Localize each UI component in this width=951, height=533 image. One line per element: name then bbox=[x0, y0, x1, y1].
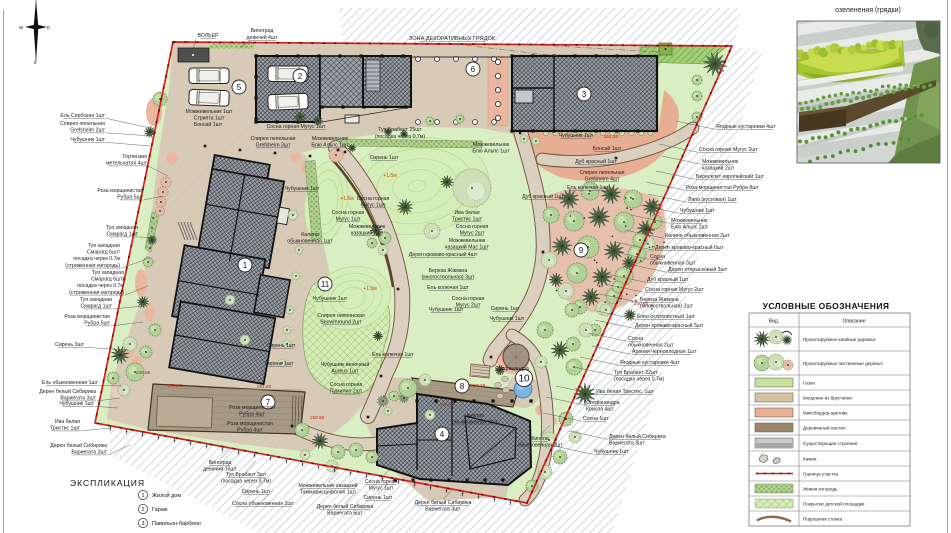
svg-text:Проектируемые лиственные дерев: Проектируемые лиственные деревья bbox=[803, 361, 883, 366]
svg-text:Ива белая: Ива белая bbox=[454, 210, 479, 216]
svg-text:+1.0м: +1.0м bbox=[363, 286, 377, 292]
svg-text:Павильон-барбекю: Павильон-барбекю bbox=[152, 521, 201, 527]
svg-text:Деревянный настил: Деревянный настил bbox=[803, 424, 846, 430]
svg-text:Роза морщинистая: Роза морщинистая bbox=[64, 314, 110, 320]
svg-text:Туя западная: Туя западная bbox=[92, 270, 124, 276]
svg-text:Виноград: Виноград bbox=[251, 28, 274, 34]
svg-text:(посадка через 0.7м): (посадка через 0.7м) bbox=[614, 377, 664, 383]
svg-text:4: 4 bbox=[440, 430, 445, 439]
svg-text:Миксбордер-цветник: Миксбордер-цветник bbox=[803, 410, 848, 415]
svg-text:1: 1 bbox=[243, 261, 248, 270]
svg-text:150.60: 150.60 bbox=[440, 402, 455, 408]
svg-text:Дерен кроваво-красный 6шт: Дерен кроваво-красный 6шт bbox=[655, 244, 724, 251]
svg-text:6: 6 bbox=[471, 65, 476, 74]
svg-text:Стрипта 1шт: Стрипта 1шт bbox=[194, 116, 225, 122]
svg-text:5: 5 bbox=[237, 83, 242, 92]
svg-text:Ива белая: Ива белая bbox=[55, 419, 80, 425]
svg-text:Дерен белый Сибирика: Дерен белый Сибирика bbox=[317, 503, 374, 510]
svg-text:Можжевельник: Можжевельник bbox=[473, 142, 510, 148]
svg-text:Гортензия: Гортензия bbox=[123, 154, 147, 160]
svg-text:Можжевельник: Можжевельник bbox=[349, 224, 386, 230]
svg-text:Смарагд 6шт/: Смарагд 6шт/ bbox=[87, 250, 121, 256]
svg-text:Живая изгородь: Живая изгородь bbox=[803, 486, 838, 491]
svg-text:Гараж: Гараж bbox=[152, 507, 168, 513]
svg-text:Можжевельник: Можжевельник bbox=[312, 136, 349, 142]
svg-text:150.60: 150.60 bbox=[310, 415, 325, 421]
svg-text:Туя западная: Туя западная bbox=[88, 243, 120, 249]
svg-text:Существующие строения: Существующие строения bbox=[803, 441, 858, 446]
svg-text:Мощение из брусчатки: Мощение из брусчатки bbox=[803, 395, 852, 400]
svg-text:Анелла: Анелла bbox=[466, 413, 484, 419]
svg-text:казацкий 2шт: казацкий 2шт bbox=[702, 165, 735, 172]
svg-text:Блю Альпс 2шт: Блю Альпс 2шт bbox=[671, 225, 709, 231]
svg-text:Дуб красный 1шт: Дуб красный 1шт bbox=[575, 158, 617, 165]
svg-text:Дерен отпрысковый 3шт: Дерен отпрысковый 3шт bbox=[668, 266, 728, 273]
svg-text:посадка через 0.7м: посадка через 0.7м bbox=[77, 283, 124, 289]
svg-text:Вариегата 3шт: Вариегата 3шт bbox=[425, 507, 461, 513]
svg-text:Спирея пепельная: Спирея пепельная bbox=[60, 121, 105, 127]
svg-text:Подпорная стенка: Подпорная стенка bbox=[803, 516, 842, 521]
svg-text:обыкновенная 3шт: обыкновенная 3шт bbox=[650, 261, 696, 267]
svg-text:Туя Брабант 25шт: Туя Брабант 25шт bbox=[378, 127, 422, 133]
svg-text:Туя западная: Туя западная bbox=[80, 297, 112, 303]
svg-text:Дерен белый Сибирика: Дерен белый Сибирика bbox=[39, 388, 96, 395]
svg-text:Туя западная: Туя западная bbox=[106, 225, 138, 231]
svg-text:Жилой дом: Жилой дом bbox=[152, 492, 181, 499]
svg-text:Бересклет европейский 1шт: Бересклет европейский 1шт bbox=[696, 173, 765, 180]
svg-text:Роза морщинистая: Роза морщинистая bbox=[97, 188, 143, 194]
svg-text:Чубушник веночный: Чубушник веночный bbox=[321, 361, 370, 368]
svg-text:2: 2 bbox=[141, 507, 144, 513]
svg-text:Газон: Газон bbox=[803, 380, 815, 385]
svg-text:Калина: Калина bbox=[301, 232, 319, 238]
svg-text:E: E bbox=[47, 25, 50, 30]
svg-text:(посадка через 0.7м): (посадка через 0.7м) bbox=[375, 134, 425, 140]
svg-text:Покрытие детской площадки: Покрытие детской площадки bbox=[803, 500, 865, 506]
svg-text:озеленения (грядки): озеленения (грядки) bbox=[835, 7, 901, 14]
svg-text:Вид.: Вид. bbox=[769, 319, 779, 325]
svg-text:2: 2 bbox=[298, 72, 303, 81]
svg-text:151,80: 151,80 bbox=[257, 384, 272, 390]
svg-text:Бонсай 1шт: Бонсай 1шт bbox=[593, 145, 622, 152]
svg-text:Криспа 4шт: Криспа 4шт bbox=[586, 407, 615, 413]
svg-text:УСЛОВНЫЕ ОБОЗНАЧЕНИЯ: УСЛОВНЫЕ ОБОЗНАЧЕНИЯ bbox=[763, 301, 890, 311]
svg-text:W: W bbox=[19, 25, 24, 30]
svg-text:Бонсай 1шт: Бонсай 1шт bbox=[194, 121, 223, 128]
svg-text:11: 11 bbox=[321, 280, 330, 289]
svg-text:Роза морщинистая: Роза морщинистая bbox=[229, 405, 275, 411]
svg-text:(посадка через 0.7м): (посадка через 0.7м) bbox=[221, 479, 271, 485]
svg-text:151,20: 151,20 bbox=[604, 134, 619, 140]
svg-text:Блю Альпс 1шт: Блю Альпс 1шт bbox=[472, 149, 510, 155]
svg-text:казацкий 2шт: казацкий 2шт bbox=[351, 230, 384, 237]
svg-text:Дерен белый Сибирика: Дерен белый Сибирика bbox=[50, 442, 107, 449]
svg-text:1: 1 bbox=[141, 493, 144, 499]
svg-text:150.79: 150.79 bbox=[471, 383, 486, 389]
svg-text:Сосна горная: Сосна горная bbox=[452, 296, 485, 302]
svg-text:посадка через 0.7м: посадка через 0.7м bbox=[73, 256, 120, 262]
svg-text:Проектируемые хвойные деревья: Проектируемые хвойные деревья bbox=[803, 336, 876, 342]
svg-text:Стефанандра: Стефанандра bbox=[495, 366, 529, 372]
svg-text:Вариегата 3шт: Вариегата 3шт bbox=[609, 441, 645, 447]
svg-text:Спирея ниппонская: Спирея ниппонская bbox=[317, 313, 364, 319]
svg-text:8: 8 bbox=[460, 382, 465, 391]
svg-text:девичий 4шт: девичий 4шт bbox=[247, 34, 279, 41]
svg-text:3: 3 bbox=[582, 90, 587, 99]
svg-text:Дерен кроваво-красный 4шт: Дерен кроваво-красный 4шт bbox=[409, 251, 478, 258]
svg-text:9: 9 bbox=[579, 246, 584, 255]
svg-text:Камни: Камни bbox=[803, 456, 817, 461]
svg-text:обыкновенная 2шт: обыкновенная 2шт bbox=[628, 343, 674, 349]
svg-text:150.98: 150.98 bbox=[136, 370, 151, 376]
svg-text:Дерен кроваво-красный 5шт: Дерен кроваво-красный 5шт bbox=[635, 322, 704, 329]
svg-text:Сосна горная: Сосна горная bbox=[332, 210, 365, 216]
svg-text:Спирея пепельная: Спирея пепельная bbox=[251, 136, 296, 142]
svg-text:Граница участка: Граница участка bbox=[803, 471, 839, 476]
svg-text:Таммарисцифолия 1шт: Таммарисцифолия 1шт bbox=[300, 490, 357, 496]
svg-text:Роза морщинистая: Роза морщинистая bbox=[227, 421, 273, 427]
svg-text:(многоствольная) 2шт: (многоствольная) 2шт bbox=[640, 304, 694, 310]
svg-text:Дуб красный 1шт: Дуб красный 1шт bbox=[522, 193, 564, 200]
svg-text:Можжевельник казацкий: Можжевельник казацкий bbox=[298, 482, 357, 489]
svg-text:10: 10 bbox=[518, 374, 530, 385]
svg-text:Дерен белый Сибирика: Дерен белый Сибирика bbox=[609, 433, 666, 440]
svg-text:Сосна горная: Сосна горная bbox=[330, 382, 363, 388]
svg-text:151,80: 151,80 bbox=[168, 383, 183, 389]
svg-text:+1.5м: +1.5м bbox=[340, 196, 354, 202]
svg-text:Смарагд 6шт/: Смарагд 6шт/ bbox=[91, 277, 125, 283]
svg-text:Можжевельник 1шт: Можжевельник 1шт bbox=[185, 109, 233, 115]
svg-text:Сосна горная: Сосна горная bbox=[456, 224, 489, 230]
svg-text:Береза Жамана: Береза Жамана bbox=[429, 268, 468, 274]
svg-text:Сосна горная: Сосна горная bbox=[357, 196, 390, 202]
svg-text:Можжевельник: Можжевельник bbox=[449, 238, 486, 244]
svg-text:казацкий Мас 1шт: казацкий Мас 1шт bbox=[445, 244, 489, 251]
svg-text:Клен остролистный 1шт: Клен остролистный 1шт bbox=[637, 313, 696, 320]
svg-text:Описание: Описание bbox=[842, 319, 865, 325]
svg-text:Вариегата 5шт: Вариегата 5шт bbox=[327, 511, 363, 517]
svg-text:3: 3 bbox=[141, 521, 144, 527]
svg-text:S: S bbox=[33, 60, 36, 65]
svg-text:+1.5м: +1.5м bbox=[383, 173, 397, 179]
svg-text:ЭКСПЛИКАЦИЯ: ЭКСПЛИКАЦИЯ bbox=[70, 478, 145, 488]
svg-text:Дуб красный 1шт: Дуб красный 1шт bbox=[647, 276, 689, 283]
svg-text:обыкновенная 2шт: обыкновенная 2шт bbox=[517, 443, 563, 449]
svg-text:Спирея пепельная: Спирея пепельная bbox=[580, 170, 625, 176]
svg-text:Дерен белый Сибирика: Дерен белый Сибирика bbox=[415, 499, 472, 506]
